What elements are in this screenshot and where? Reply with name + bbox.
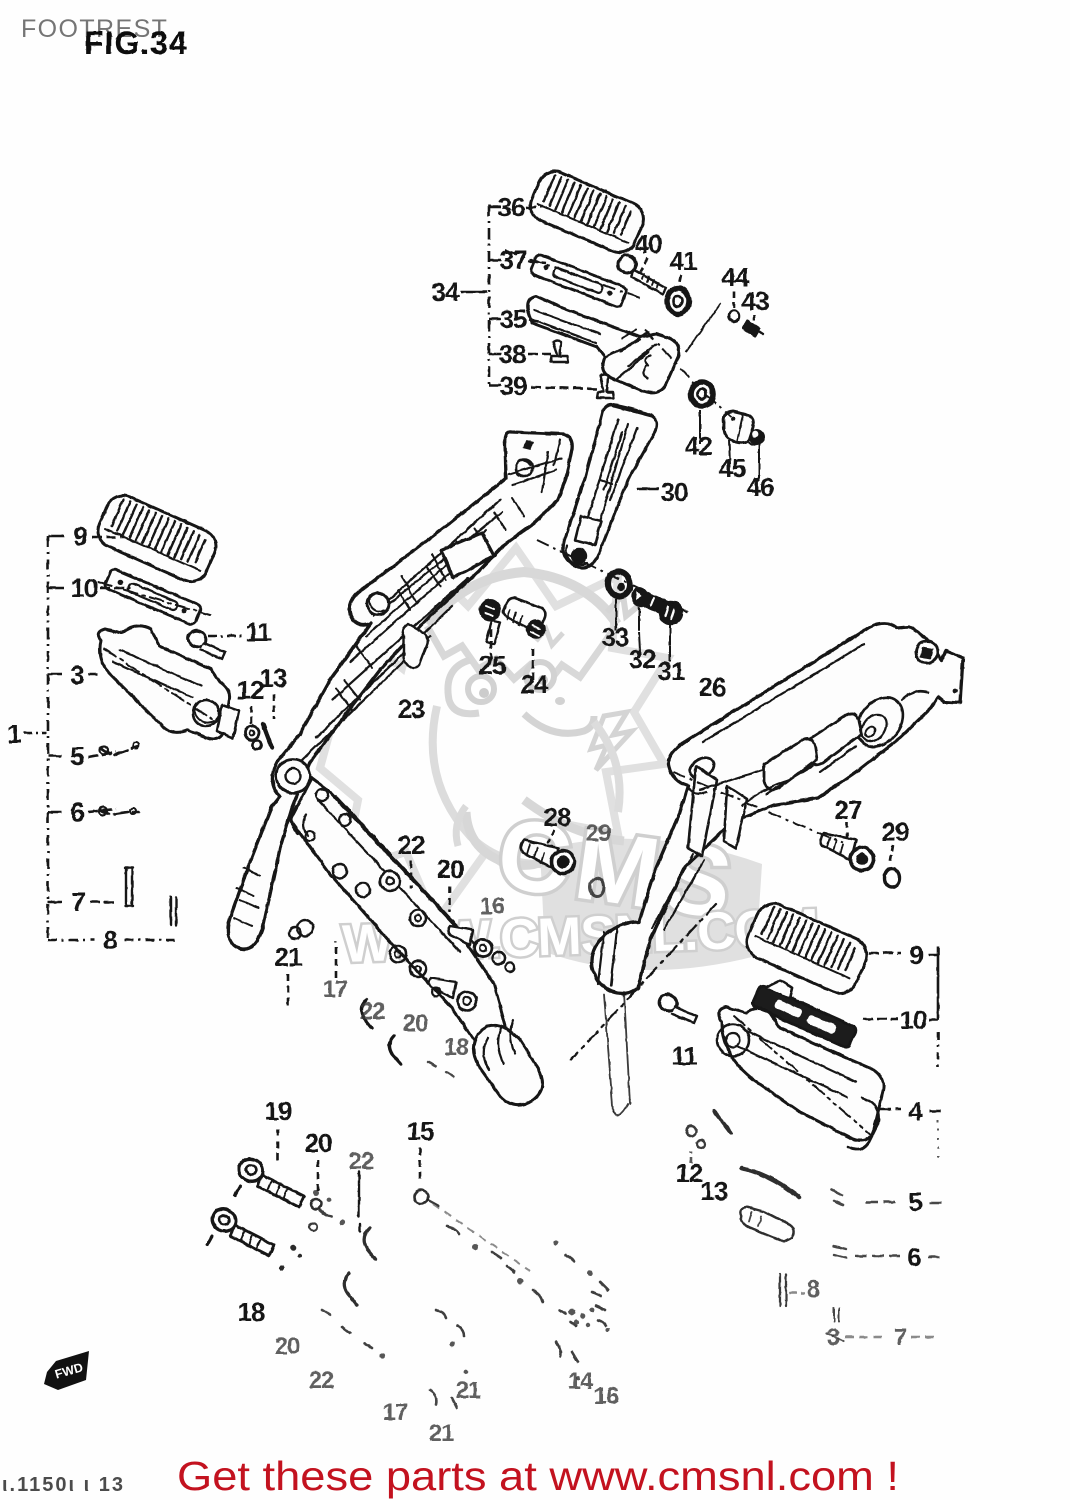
svg-text:20: 20 <box>305 1128 332 1158</box>
svg-text:17: 17 <box>383 1399 408 1426</box>
svg-text:5: 5 <box>70 741 84 771</box>
svg-text:29: 29 <box>586 820 611 847</box>
svg-text:32: 32 <box>629 644 656 674</box>
svg-text:37: 37 <box>500 245 527 275</box>
svg-text:FIG.34: FIG.34 <box>84 25 188 61</box>
svg-text:33: 33 <box>602 622 629 652</box>
svg-text:10: 10 <box>71 573 98 603</box>
svg-text:10: 10 <box>900 1005 927 1035</box>
svg-text:45: 45 <box>719 453 746 483</box>
svg-text:13: 13 <box>701 1176 728 1206</box>
svg-text:6: 6 <box>907 1242 921 1272</box>
svg-text:39: 39 <box>500 371 527 401</box>
svg-text:16: 16 <box>594 1383 619 1410</box>
svg-text:19: 19 <box>265 1096 292 1126</box>
svg-text:36: 36 <box>498 192 525 222</box>
svg-text:7: 7 <box>71 887 85 917</box>
svg-text:43: 43 <box>742 286 769 316</box>
svg-text:30: 30 <box>661 477 688 507</box>
svg-text:18: 18 <box>444 1034 469 1061</box>
svg-text:35: 35 <box>500 304 527 334</box>
svg-text:11: 11 <box>245 617 271 647</box>
svg-text:29: 29 <box>882 817 909 847</box>
svg-text:3: 3 <box>827 1324 840 1351</box>
svg-text:31: 31 <box>658 656 685 686</box>
svg-text:4: 4 <box>908 1096 923 1126</box>
svg-text:28: 28 <box>544 802 571 832</box>
svg-text:20: 20 <box>403 1010 428 1037</box>
svg-text:46: 46 <box>747 472 774 502</box>
svg-text:23: 23 <box>398 694 425 724</box>
svg-text:20: 20 <box>275 1333 300 1360</box>
svg-text:16: 16 <box>480 893 505 920</box>
svg-text:21: 21 <box>429 1420 454 1447</box>
svg-text:27: 27 <box>835 795 862 825</box>
svg-text:34: 34 <box>432 277 460 307</box>
svg-text:ι.1150ι ι 13: ι.1150ι ι 13 <box>2 1474 125 1496</box>
svg-text:11: 11 <box>671 1041 697 1071</box>
svg-text:21: 21 <box>275 942 302 972</box>
svg-text:21: 21 <box>456 1377 481 1404</box>
svg-text:41: 41 <box>670 246 697 276</box>
svg-text:20: 20 <box>437 854 464 884</box>
svg-text:38: 38 <box>499 339 526 369</box>
svg-text:17: 17 <box>323 976 348 1003</box>
svg-text:15: 15 <box>407 1116 434 1146</box>
svg-text:13: 13 <box>260 663 287 693</box>
svg-text:26: 26 <box>699 672 726 702</box>
svg-text:6: 6 <box>70 797 84 827</box>
svg-text:18: 18 <box>238 1297 265 1327</box>
svg-text:8: 8 <box>103 925 117 955</box>
svg-text:9: 9 <box>909 940 923 970</box>
svg-text:Get these parts at www.cmsnl.c: Get these parts at www.cmsnl.com ! <box>177 1453 899 1499</box>
svg-text:1: 1 <box>7 719 21 749</box>
svg-text:12: 12 <box>676 1158 703 1188</box>
svg-text:22: 22 <box>360 998 385 1025</box>
svg-text:22: 22 <box>309 1367 334 1394</box>
svg-text:22: 22 <box>349 1148 374 1175</box>
svg-text:3: 3 <box>70 660 84 690</box>
svg-text:5: 5 <box>908 1187 922 1217</box>
svg-text:22: 22 <box>398 830 425 860</box>
svg-text:42: 42 <box>685 431 712 461</box>
svg-text:14: 14 <box>568 1368 594 1395</box>
svg-text:8: 8 <box>807 1276 820 1303</box>
svg-text:25: 25 <box>479 650 506 680</box>
svg-text:24: 24 <box>521 669 549 699</box>
svg-text:40: 40 <box>635 229 662 259</box>
svg-text:9: 9 <box>73 521 87 551</box>
svg-text:7: 7 <box>894 1324 907 1351</box>
